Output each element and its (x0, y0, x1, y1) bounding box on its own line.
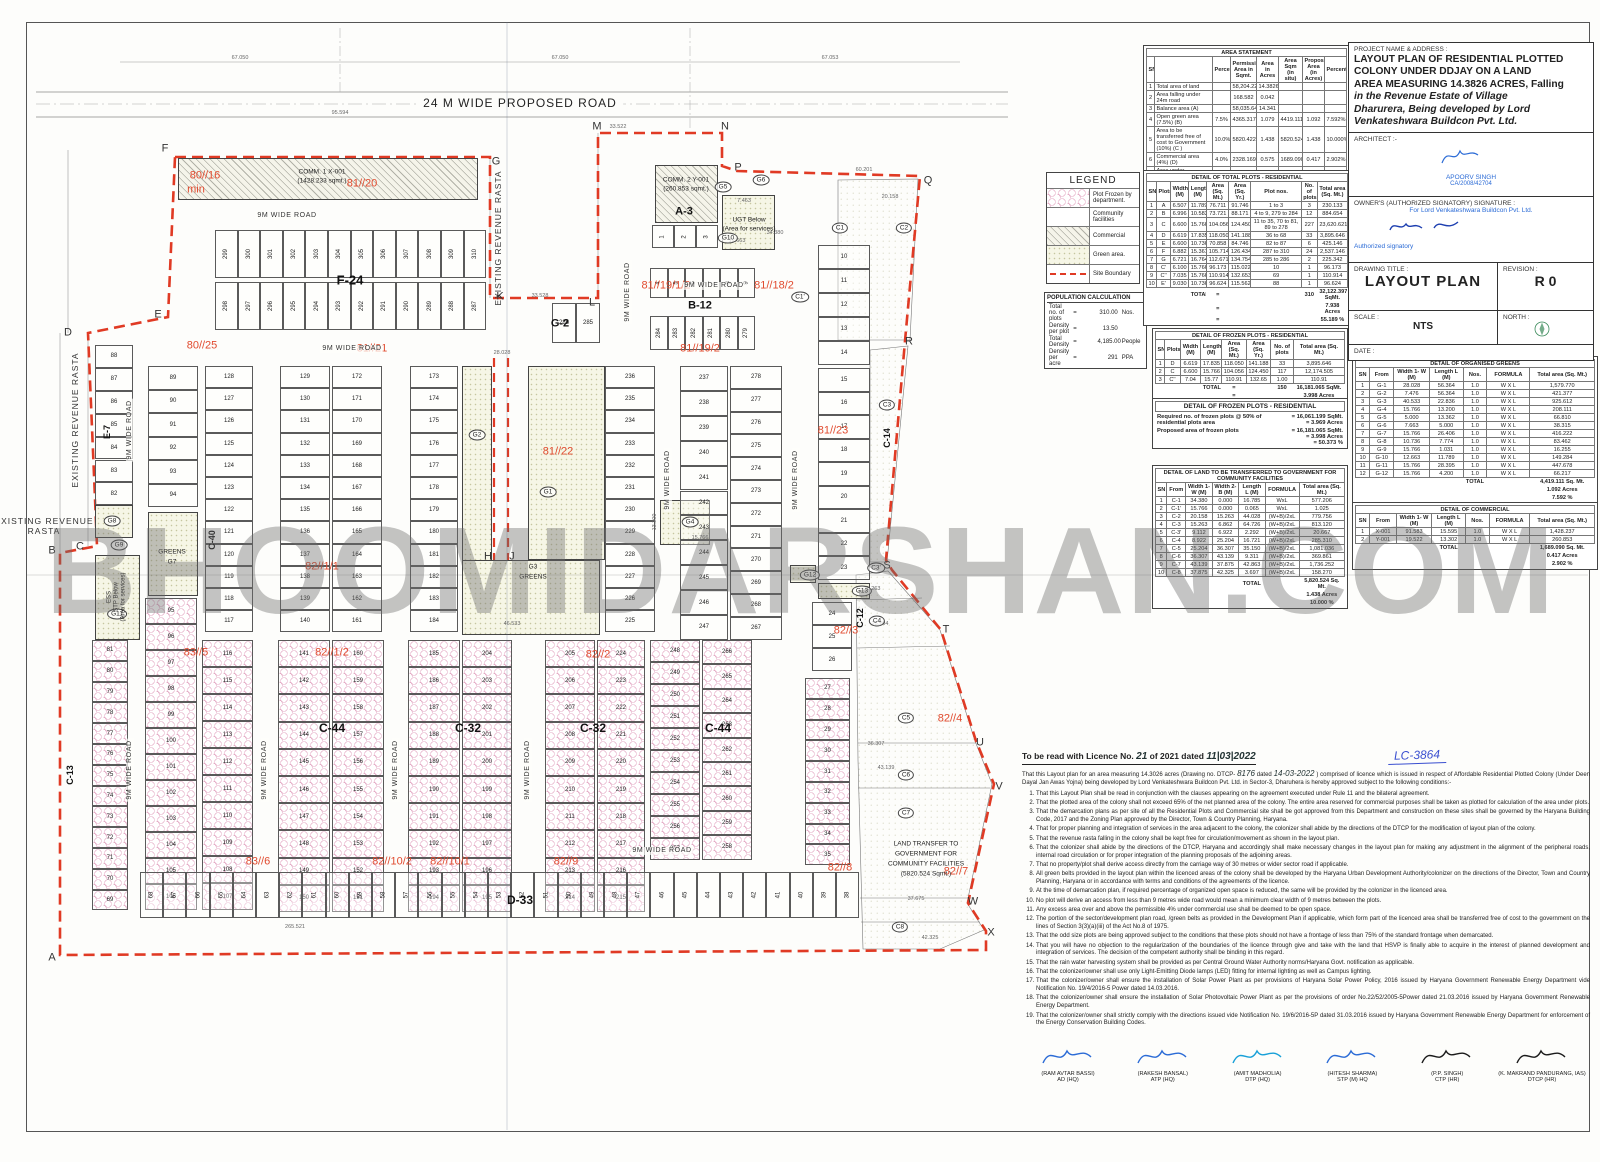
plot-cell: 235 (605, 388, 655, 410)
organised-greens-table: DETAIL OF ORGANISED GREENSSNFromWidth 1-… (1352, 356, 1598, 504)
plot-cell: 197 (462, 830, 512, 857)
legend-label: Community facilities (1090, 210, 1139, 224)
table-cell: W X L (1489, 536, 1530, 544)
table-cell: 7.5% (1213, 113, 1231, 127)
table-cell: 2 (1301, 256, 1317, 264)
plot-cell: 222 (597, 694, 645, 721)
table-cell: 9 (1147, 272, 1157, 280)
population-cell: Nos. (1120, 303, 1144, 322)
boundary-letter: J (509, 551, 515, 564)
table-cell (1396, 552, 1432, 560)
table-cell: 5820.524 (1279, 127, 1303, 153)
table-cell: 1.025 (1299, 505, 1344, 513)
plot-cell: 209 (545, 749, 595, 776)
population-cell: PPA (1120, 348, 1144, 367)
total-plots-table: DETAIL OF TOTAL PLOTS - RESIDENTIALSNPlo… (1143, 170, 1351, 326)
table-cell: C-1 (1167, 497, 1186, 505)
plot-cell: 275 (730, 434, 782, 457)
table-cell: 1689.090 (1279, 153, 1303, 167)
commercial-table: DETAIL OF COMMERCIALSNFromWidth 1- W (M)… (1352, 502, 1598, 570)
table-cell: 11.789 (1430, 454, 1463, 462)
table-cell: Length L (M) (1432, 514, 1465, 528)
license-condition: That you will have no objection to the r… (1036, 943, 1590, 959)
table-cell (1167, 577, 1186, 591)
legend-label: Plot Frozen by department. (1090, 191, 1139, 205)
plot-cell: 230 (605, 499, 655, 521)
table-cell: 285.310 (1299, 537, 1344, 545)
table-cell: 8 (1156, 553, 1167, 561)
legend-item: Green area. (1047, 245, 1139, 264)
table-cell: 925.612 (1530, 398, 1595, 406)
table-cell: 105.714 (1207, 248, 1229, 256)
khasra-label: 82//9 (554, 856, 578, 869)
table-cell: 43.139 (1186, 561, 1212, 569)
table-cell: 110.914 (1317, 272, 1347, 280)
plot-cell: 30 (805, 740, 850, 761)
signature-3: (AMIT MADHOLIA)DTP (HQ) (1212, 1043, 1304, 1083)
table-cell: Plots (1157, 182, 1171, 202)
table-cell: G-5 (1370, 414, 1394, 422)
table-cell (1171, 302, 1189, 316)
signature-row: (RAM AVTAR BASSI)AD (HQ)(RAKESH BANSAL)A… (1022, 1043, 1588, 1083)
signature-scribble-icon (1223, 1043, 1293, 1069)
plot-cell: 104 (145, 832, 197, 858)
table-cell: E' (1157, 280, 1171, 288)
table-cell: Length (M) (1189, 182, 1207, 202)
land-transfer: DETAIL OF LAND TO BE TRANSFERRED TO GOVE… (1155, 468, 1345, 606)
table-cell: 6 (1356, 422, 1370, 430)
plot-cell: 171 (332, 388, 382, 410)
plot-cell: 77 (92, 723, 128, 744)
table-cell: = (1207, 288, 1229, 302)
project-line: Dharurera, Being developed by Lord (1354, 104, 1588, 116)
table-cell: From (1167, 483, 1186, 497)
table-cell: 1.0 (1463, 406, 1487, 414)
table-cell: 7.592 % (1530, 494, 1595, 502)
boundary-letter: M (592, 121, 601, 134)
khasra-label: 81//23 (818, 425, 849, 438)
table-cell: Plots (1165, 340, 1180, 360)
plan-text: GREENS (158, 548, 185, 555)
khasra-label: 81//19/2 (680, 343, 720, 356)
plot-cell: 182 (410, 566, 458, 588)
table-cell (1229, 316, 1251, 324)
plot-cell: 73 (92, 806, 128, 827)
table-cell: 1.0 (1463, 446, 1487, 454)
table-cell: 17.835 (1189, 232, 1207, 240)
table-cell: Proposed Area (in Acres) (1303, 57, 1325, 83)
table-cell: 84.746 (1229, 240, 1251, 248)
table-cell: 5 (1147, 240, 1157, 248)
plot-cell: 268 (730, 594, 782, 617)
table-cell (1147, 302, 1157, 316)
plot-cell: 38 (836, 872, 859, 918)
signatory-role: STP (M) HQ (1306, 1077, 1398, 1083)
signature-scribble-icon (1507, 1043, 1577, 1069)
table-cell: 16.785 (1239, 497, 1265, 505)
plot-cell: 125 (205, 433, 253, 455)
plot-cell: 189 (408, 749, 460, 776)
table-cell: 20.667 (1299, 529, 1344, 537)
table-cell: 9.030 (1171, 280, 1189, 288)
table-cell: 1,736.252 (1299, 561, 1344, 569)
legend: LEGEND Plot Frozen by department.Communi… (1046, 172, 1140, 284)
table-cell: Y-001 (1370, 536, 1396, 544)
table-cell (1157, 302, 1171, 316)
boundary-letter: R (905, 336, 913, 349)
plot-cell: 174 (410, 388, 458, 410)
table-cell: SN (1156, 483, 1167, 497)
table-cell: 10 (1356, 454, 1370, 462)
road-label: 9M WIDE ROAD (126, 398, 134, 461)
table-cell (1489, 544, 1530, 552)
table-cell: 150 (1271, 384, 1294, 392)
license-condition: That the odd size plots are being approv… (1036, 933, 1590, 941)
plot-cell: 259 (702, 811, 752, 835)
population-cell: People (1120, 335, 1144, 348)
table-cell: 1 (1356, 528, 1370, 536)
population-cell: 291 (1096, 348, 1120, 367)
plot-cell: 111 (202, 775, 253, 802)
table-cell: 16.721 (1239, 537, 1265, 545)
project-label: PROJECT NAME & ADDRESS : (1354, 46, 1588, 53)
table-cell: 2328.169 (1231, 153, 1257, 167)
table-cell (1489, 560, 1530, 568)
plot-cell: 60 (326, 872, 349, 918)
community-marker-c1: C1' (791, 292, 809, 303)
plot-cell: 237 (680, 366, 728, 391)
table-cell: 6.600 (1171, 218, 1189, 232)
plot-cell: 10 (818, 245, 870, 269)
table-cell: TOTAL (1432, 544, 1465, 552)
plot-cell: 228 (605, 544, 655, 566)
table-cell: 2.292 (1239, 529, 1265, 537)
license-conditions: To be read with Licence No. 21 of 2021 d… (1022, 750, 1590, 1030)
plot-cell: 58 (372, 872, 395, 918)
table-cell: 1.438 Acres (1299, 591, 1344, 599)
table-cell: 10.000 % (1299, 599, 1344, 607)
table-cell: C' (1157, 264, 1171, 272)
table-cell: 37.875 (1212, 561, 1238, 569)
plot-cell: 280 (720, 316, 738, 350)
plot-cell: 300 (238, 230, 261, 278)
revenue-rasta-label: EXISTING REVENUE RASTA (0, 517, 94, 537)
license-condition: No plot will derive an access from less … (1036, 898, 1590, 906)
table-cell: 4 (1147, 113, 1155, 127)
table-cell: 12 (1301, 210, 1317, 218)
boundary-letter: L (589, 297, 595, 310)
plot-cell: 162 (332, 588, 382, 610)
owner-signature (1384, 214, 1474, 238)
table-cell (1156, 577, 1167, 591)
table-cell: 6 (1301, 240, 1317, 248)
plan-text: (Area for services) (722, 225, 775, 232)
plot-cell: 78 (92, 702, 128, 723)
table-cell (1251, 288, 1301, 302)
table-cell: 36.307 (1212, 545, 1238, 553)
signatory-role: ATP (HQ) (1117, 1077, 1209, 1083)
table-cell: G-10 (1370, 454, 1394, 462)
table-cell: 6.882 (1171, 248, 1189, 256)
boundary-letter: C (76, 541, 84, 554)
plot-cell: 190 (408, 776, 460, 803)
dimension-text: 13.200 (652, 514, 658, 531)
table-cell: 7.663 (1394, 422, 1430, 430)
legend-item: Site Boundary (1047, 264, 1139, 283)
table-cell (1487, 478, 1530, 486)
legend-swatch-hatch (1047, 227, 1090, 245)
table-cell: 421.377 (1530, 390, 1595, 398)
plan-text: G7 (168, 558, 177, 565)
plot-cell: 91 (148, 413, 198, 437)
plot-cell: 24 (812, 602, 852, 625)
table-cell: 12 (1356, 470, 1370, 478)
plot-cell: 245 (680, 565, 728, 590)
plot-cell: 203 (462, 667, 512, 694)
plot-cell: 278 (730, 366, 782, 389)
table-cell: 115.562 (1229, 280, 1251, 288)
community-marker-c5: C5 (898, 713, 914, 724)
table-cell: Area (Sq. Mt.) (1222, 340, 1247, 360)
plot-cell: 170 (332, 410, 382, 432)
dimension-text: 42.325 (922, 935, 939, 941)
road-label: 9M WIDE ROAD (126, 738, 134, 801)
project-line: Venkateshwara Buildcon Pvt. Ltd. (1354, 116, 1588, 128)
north-box: NORTH : (1498, 311, 1594, 345)
plot-cell: 44 (697, 872, 720, 918)
table-cell (1186, 591, 1212, 599)
plot-cell: 219 (597, 776, 645, 803)
plot-cell: 185 (408, 640, 460, 667)
table-cell: G-9 (1370, 446, 1394, 454)
table-cell: = (1222, 384, 1247, 392)
table-cell: 2 (1147, 210, 1157, 218)
table-cell: No. of plots (1271, 340, 1294, 360)
table-cell: 1.092 Acres (1530, 486, 1595, 494)
table-cell (1432, 552, 1465, 560)
plot-cell: 173 (410, 366, 458, 388)
block-label: B-12 (688, 300, 712, 313)
table-cell: W X L (1487, 398, 1530, 406)
table-cell: 0.065 (1239, 505, 1265, 513)
table-cell: 168.582 (1231, 91, 1257, 105)
table-cell (1356, 494, 1370, 502)
table-cell (1465, 552, 1489, 560)
table-cell: TOTAL (1239, 577, 1265, 591)
table-cell (1279, 91, 1303, 105)
table-cell: 15.766 (1394, 446, 1430, 454)
commercial: DETAIL OF COMMERCIALSNFromWidth 1- W (M)… (1355, 505, 1595, 567)
table-cell: 44.028 (1239, 513, 1265, 521)
plot-cell: 290 (396, 282, 419, 330)
plot-cell: 287 (464, 282, 487, 330)
table-cell: 4 (1356, 406, 1370, 414)
dimension-text: 67.050 (552, 55, 569, 61)
table-cell (1229, 288, 1251, 302)
plot-cell: 48 (604, 872, 627, 918)
table-cell: C-4 (1167, 537, 1186, 545)
plot-cell: 159 (332, 667, 384, 694)
plot-cell: 272 (730, 503, 782, 526)
table-cell: 88.171 (1229, 210, 1251, 218)
table-cell: 19.522 (1396, 536, 1432, 544)
table-cell: G-1 (1370, 382, 1394, 390)
plot-cell: 122 (205, 499, 253, 521)
plot-cell: 292 (351, 282, 374, 330)
khasra-label: 83//6 (246, 856, 270, 869)
khasra-label: 81//22 (543, 446, 574, 459)
table-cell (1213, 105, 1231, 113)
table-cell: WxL (1265, 505, 1299, 513)
table-cell: 88 (1251, 280, 1301, 288)
table-cell: (W+B)/2xL (1265, 513, 1299, 521)
table-cell: 1.438 (1303, 127, 1325, 153)
plan-text: (260.853 sqmt.) (663, 185, 709, 192)
plot-cell: 33 (805, 803, 850, 824)
plot-cell: 225 (605, 610, 655, 632)
signature-5: (P.P. SINGH)CTP (HR) (1401, 1043, 1493, 1083)
khasra-label: 80//25 (187, 340, 218, 353)
table-cell: 34.380 (1186, 497, 1212, 505)
table-cell: G-8 (1370, 438, 1394, 446)
boundary-letter: G (492, 156, 501, 169)
table-cell: D (1157, 232, 1171, 240)
license-condition: That the colonizer shall abide by the di… (1036, 845, 1590, 861)
population-cell: Density per plot (1047, 322, 1071, 335)
table-cell: 287 to 310 (1251, 248, 1301, 256)
table-cell (1213, 83, 1231, 91)
legend-title: LEGEND (1047, 173, 1139, 188)
total-plots: DETAIL OF TOTAL PLOTS - RESIDENTIALSNPlo… (1146, 173, 1348, 323)
plot-cell: 28 (805, 699, 850, 720)
table-cell (1186, 577, 1212, 591)
table-cell: 132.65 (1246, 376, 1271, 384)
plot-cell: 254 (650, 772, 700, 794)
plot-cell: 95 (145, 598, 197, 624)
legend-swatch-frozen (1047, 189, 1090, 207)
table-cell: 3,895.646 (1317, 232, 1347, 240)
signature-4: (HITESH SHARMA)STP (M) HQ (1306, 1043, 1398, 1083)
table-cell: SN (1147, 57, 1155, 83)
table-cell: 369.861 (1299, 553, 1344, 561)
green-marker-g4: G4 (682, 517, 699, 528)
table-cell: 7.938 Acres (1317, 302, 1347, 316)
plot-cell: 127 (205, 388, 253, 410)
frozen-plots-summary: DETAIL OF FROZEN PLOTS - RESIDENTIALRequ… (1152, 398, 1348, 449)
table-cell: 2,537.146 (1317, 248, 1347, 256)
table-cell: G-6 (1370, 422, 1394, 430)
table-cell (1356, 560, 1370, 568)
table-cell: 1 (1301, 280, 1317, 288)
block-label: D-33 (507, 894, 533, 908)
plot-cell: 21 (818, 509, 870, 533)
table-cell: 4 (1156, 521, 1167, 529)
table-cell: TOTAL (1189, 288, 1207, 302)
revenue-rasta-label: EXISTING REVENUE RASTA (494, 170, 504, 305)
table-cell: Total area of land (1155, 83, 1213, 91)
table-cell: 25.204 (1186, 545, 1212, 553)
khasra-label: 81//20 (347, 178, 378, 191)
table-cell: 14.341 (1257, 105, 1279, 113)
table-cell (1156, 591, 1167, 599)
drawing-title: LAYOUT PLAN (1354, 273, 1492, 290)
table-cell: SN (1147, 182, 1157, 202)
table-cell: 91.583 (1396, 528, 1432, 536)
plot-cell: 113 (202, 721, 253, 748)
table-cell: W X L (1487, 462, 1530, 470)
dimension-text: 7.463 (737, 198, 751, 204)
table-cell: 15.77 (1201, 376, 1222, 384)
population-cell: = (1071, 335, 1095, 348)
boundary-letter: B (48, 545, 55, 558)
plot-cell: 56 (418, 872, 441, 918)
community-marker-c3: C3 (879, 400, 895, 411)
owner-sig-caption: Authorized signatory (1354, 243, 1588, 250)
table-cell: 10.736 (1189, 280, 1207, 288)
table-title: AREA STATEMENT (1147, 49, 1347, 57)
plot-cell: 206 (545, 667, 595, 694)
table-cell: Open green area (7.5%) (B) (1155, 113, 1213, 127)
dimension-text: 95.594 (332, 110, 349, 116)
signature-6: (K. MAKRAND PANDURANG, IAS)DTCP (HR) (1496, 1043, 1588, 1083)
license-heading-mid: of 2021 dated (1150, 751, 1204, 761)
table-title: DETAIL OF ORGANISED GREENS (1356, 360, 1595, 368)
signatory-role: DTCP (HR) (1496, 1077, 1588, 1083)
table-cell: 16.255 (1530, 446, 1595, 454)
plan-text: (1428.233 sqmt.) (297, 177, 346, 184)
table-cell: 10.0% (1213, 127, 1231, 153)
plot-cell: 39 (813, 872, 836, 918)
plot-cell: 156 (332, 749, 384, 776)
table-cell (1239, 591, 1265, 599)
plot-cell: 229 (605, 521, 655, 543)
table-cell: 0.000 (1212, 497, 1238, 505)
table-cell (1180, 384, 1201, 392)
table-cell: No. of plots (1301, 182, 1317, 202)
signatory-role: DTP (HQ) (1212, 1077, 1304, 1083)
table-cell: 1 (1356, 382, 1370, 390)
plot-cell: 289 (418, 282, 441, 330)
plan-text: UGT Below (732, 216, 765, 223)
plot-cell: 70 (92, 869, 128, 890)
table-cell: 13.302 (1432, 536, 1465, 544)
plot-cell: 140 (280, 610, 330, 632)
table-cell: 58,204.225 (1231, 83, 1257, 91)
table-cell: 3 (1147, 105, 1155, 113)
khasra-label: 82//10/1 (430, 856, 470, 869)
table-cell: TOTAL (1463, 478, 1487, 486)
table-cell (1265, 591, 1299, 599)
plot-cell: 155 (332, 776, 384, 803)
plot-cell: 167 (332, 477, 382, 499)
table-cell: 1.031 (1430, 446, 1463, 454)
table-cell: 1.079 (1257, 113, 1279, 127)
boundary-letter: F (162, 143, 169, 156)
organised-greens: DETAIL OF ORGANISED GREENSSNFromWidth 1-… (1355, 359, 1595, 501)
plot-cell: 252 (650, 728, 700, 750)
project-name-box: PROJECT NAME & ADDRESS : LAYOUT PLAN OF … (1348, 42, 1594, 133)
table-cell (1189, 316, 1207, 324)
table-cell (1370, 552, 1396, 560)
plot-cell: 110 (202, 802, 253, 829)
plan-area: 8887868584838281807978777675747372717069… (0, 0, 1010, 1162)
table-cell: 447.678 (1530, 462, 1595, 470)
drawing-title-box: DRAWING TITLE : LAYOUT PLAN (1348, 263, 1498, 311)
legend-item: Community facilities (1047, 207, 1139, 226)
table-cell: 1 (1301, 264, 1317, 272)
table-cell: 36 to 68 (1251, 232, 1301, 240)
plot-cell: 64 (233, 872, 256, 918)
